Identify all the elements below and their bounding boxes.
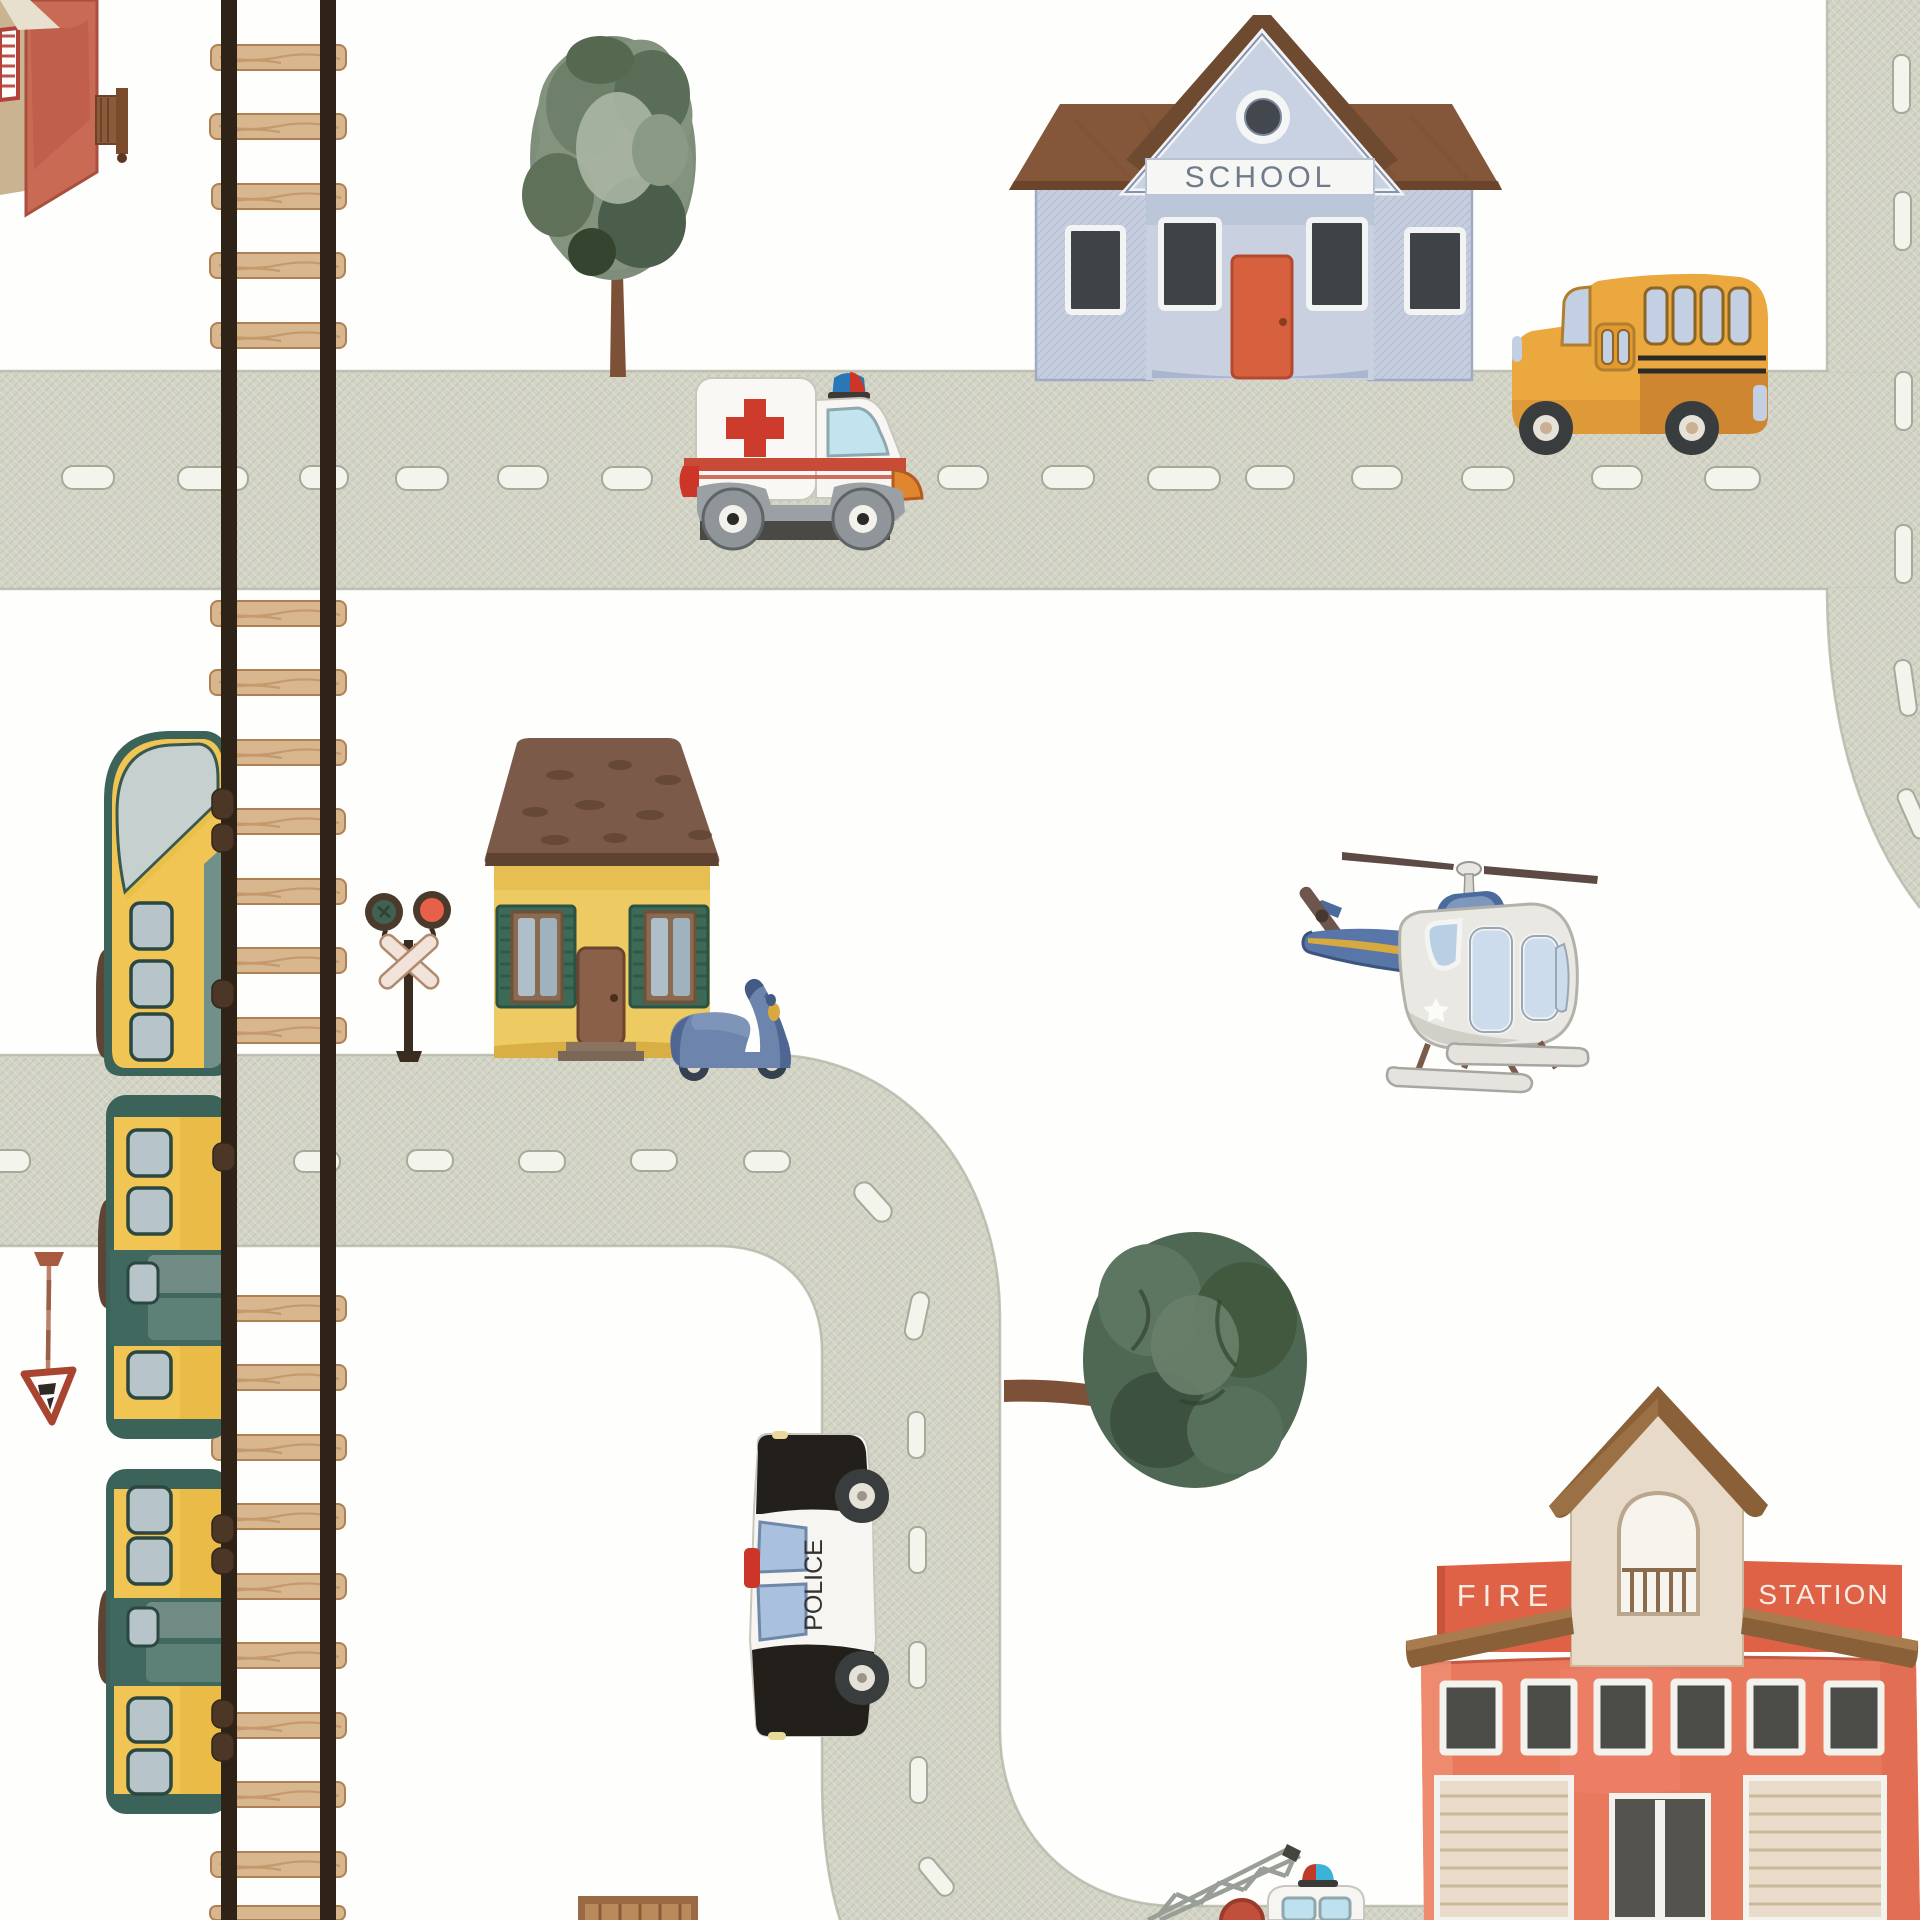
svg-text:POLICE: POLICE: [800, 1539, 828, 1631]
svg-text:SCHOOL: SCHOOL: [1185, 161, 1336, 194]
svg-text:FIRE: FIRE: [1457, 1578, 1556, 1613]
svg-text:STATION: STATION: [1758, 1579, 1889, 1610]
